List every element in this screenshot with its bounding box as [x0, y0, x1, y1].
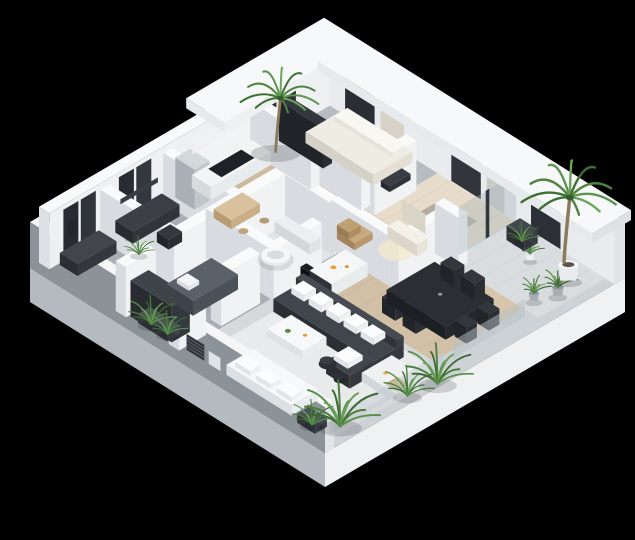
- fruit-bowl: [330, 266, 336, 270]
- coffee-table-plant: [285, 329, 291, 333]
- kitchen-stool-2: [259, 218, 269, 224]
- pouf-large-top: [320, 356, 334, 364]
- isometric-scene: [0, 0, 635, 540]
- dining-vase: [438, 293, 442, 296]
- coffee-table-bowl: [303, 334, 307, 337]
- kitchen-stool-1: [238, 228, 248, 234]
- pouf-small-top: [335, 374, 344, 380]
- fruit: [345, 265, 349, 268]
- terrace-door-frame: [486, 189, 490, 239]
- floorplan-render: [0, 0, 635, 540]
